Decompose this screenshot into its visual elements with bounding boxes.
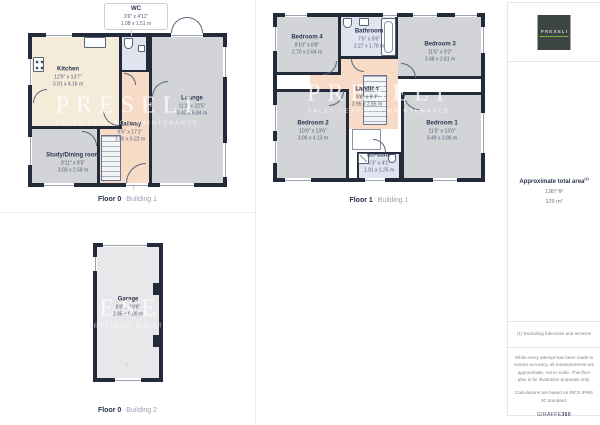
giraffe360-brand: GIRAFFE360 [513,411,595,419]
kitchen-sink-icon [84,37,106,48]
french-door-arc [187,17,203,33]
window [365,178,385,182]
sidebar-divider [508,347,600,348]
total-area-sqft: 1387 ft² [508,189,600,195]
hob-icon [33,57,44,72]
window [160,183,194,187]
bath-icon [381,18,396,56]
total-area-sqm: 129 m² [508,199,600,205]
floorplan-floor0-building1: Kitchen 12'9" x 13'7" 3.91 x 4.16 m Loun… [28,33,227,187]
toilet-icon [343,18,352,28]
window [285,13,307,17]
window [46,33,72,37]
window [273,141,277,163]
plan-caption: Floor 0Building 1 [28,196,227,203]
window [383,13,397,17]
wc-callout-stem [131,29,132,36]
entrance-arrow-icon: ↑ [125,363,128,369]
plan-caption: Floor 0Building 2 [28,407,227,414]
toilet-icon [124,38,133,49]
stairs [101,135,121,181]
footnote-marker: (1) [584,177,588,181]
wall-notch [153,283,159,295]
window [273,105,277,131]
door-opening [115,378,141,382]
window [44,183,74,187]
room-landing-arm [310,75,341,89]
window [481,113,485,153]
window [223,47,227,77]
french-door-opening [171,33,203,37]
grid-divider-horizontal [0,212,255,213]
wall-notch [153,335,159,347]
room-label-garage: Garage 9'8" x 19'8" 2.95 x 6.00 m [113,296,143,317]
window [481,27,485,53]
floorplan-floor1-building1: Bedroom 4 8'10" x 8'8" 2.70 x 2.64 m Bat… [273,13,485,182]
preseli-logo: PRESELI [538,15,571,50]
garage-door-opening [103,243,147,247]
disclaimer-block: While every attempt has been made to ens… [513,354,595,419]
floorplan-floor0-building2: Garage 9'8" x 19'8" 2.95 x 6.00 m ↑ PRES… [93,243,163,382]
sidebar-divider [508,321,600,322]
french-door-arc [171,17,187,33]
entrance-arrow-icon: ↑ [132,185,136,192]
grid-divider-vertical [255,0,256,425]
shower-icon [358,153,369,164]
plan-caption: Floor 1Building 1 [273,197,485,204]
toilet-icon [388,154,396,163]
window [433,178,457,182]
door-arc [373,139,386,152]
window [28,59,32,85]
sink-icon [359,18,369,26]
floorplan-page: Kitchen 12'9" x 13'7" 3.91 x 4.16 m Loun… [0,0,600,425]
total-area-label: Approximate total area(1) [508,177,600,185]
calculations-text: Calculations are based on RICS IPMS 3C s… [513,389,595,404]
sidebar-divider [508,61,600,62]
wc-callout: WC 3'6" x 4'11" 1.08 x 1.51 m [104,3,168,30]
window [223,143,227,177]
total-area-block: Approximate total area(1) 1387 ft² 129 m… [508,177,600,205]
window [273,27,277,51]
info-sidebar: PRESELI Approximate total area(1) 1387 f… [507,2,600,416]
window [455,13,477,17]
stairs [363,75,387,125]
footnote-text: (1) Excluding balconies and terraces [513,330,595,337]
window [93,257,97,271]
preseli-logo-text: PRESELI [540,29,568,37]
watermark: PRESELI SALES·LETTINGS·MAINTENANCE [56,296,200,329]
disclaimer-text: While every attempt has been made to ens… [513,354,595,383]
room-lounge [149,37,223,183]
window [413,13,437,17]
window [285,178,311,182]
front-door-opening [126,183,148,187]
window [28,137,32,165]
sink-icon [138,45,145,52]
